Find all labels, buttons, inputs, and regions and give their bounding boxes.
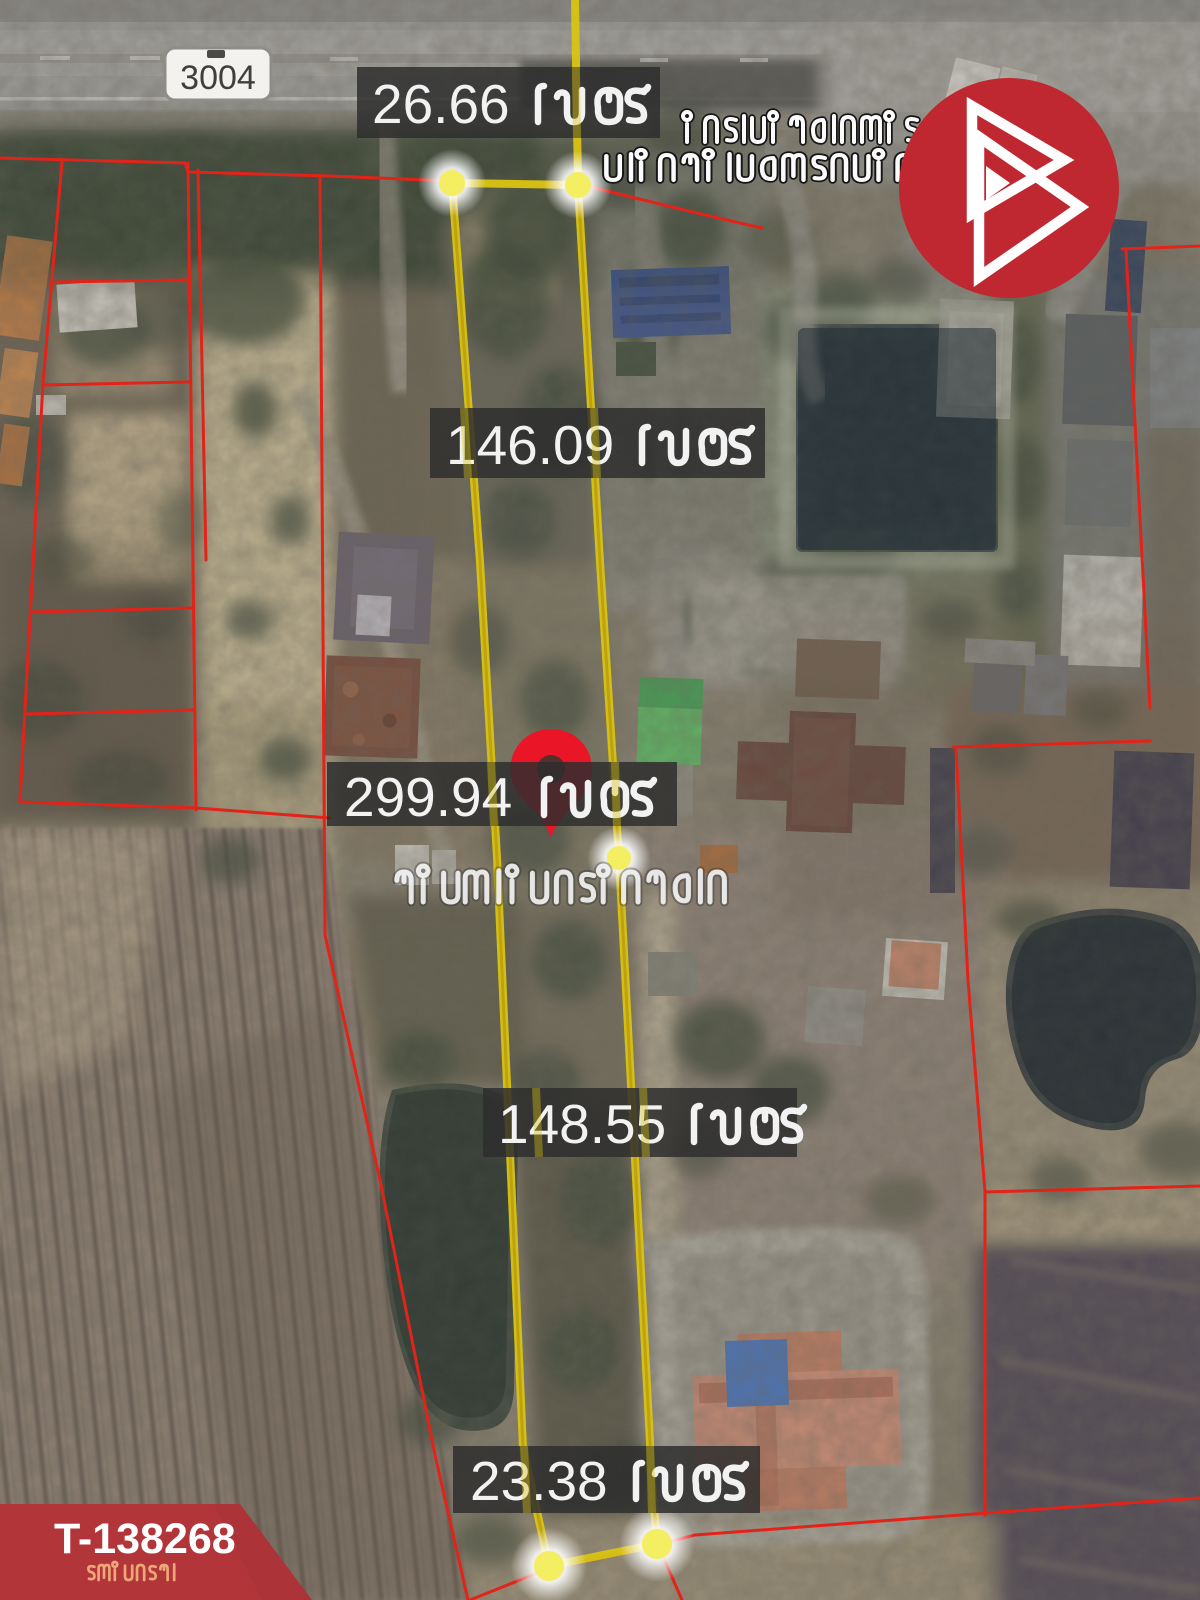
svg-text:299.94: 299.94 bbox=[344, 766, 512, 828]
svg-text:26.66: 26.66 bbox=[372, 73, 510, 135]
svg-text:23.38: 23.38 bbox=[470, 1450, 608, 1512]
svg-text:3004: 3004 bbox=[180, 59, 256, 97]
svg-text:T-138268: T-138268 bbox=[54, 1515, 236, 1563]
